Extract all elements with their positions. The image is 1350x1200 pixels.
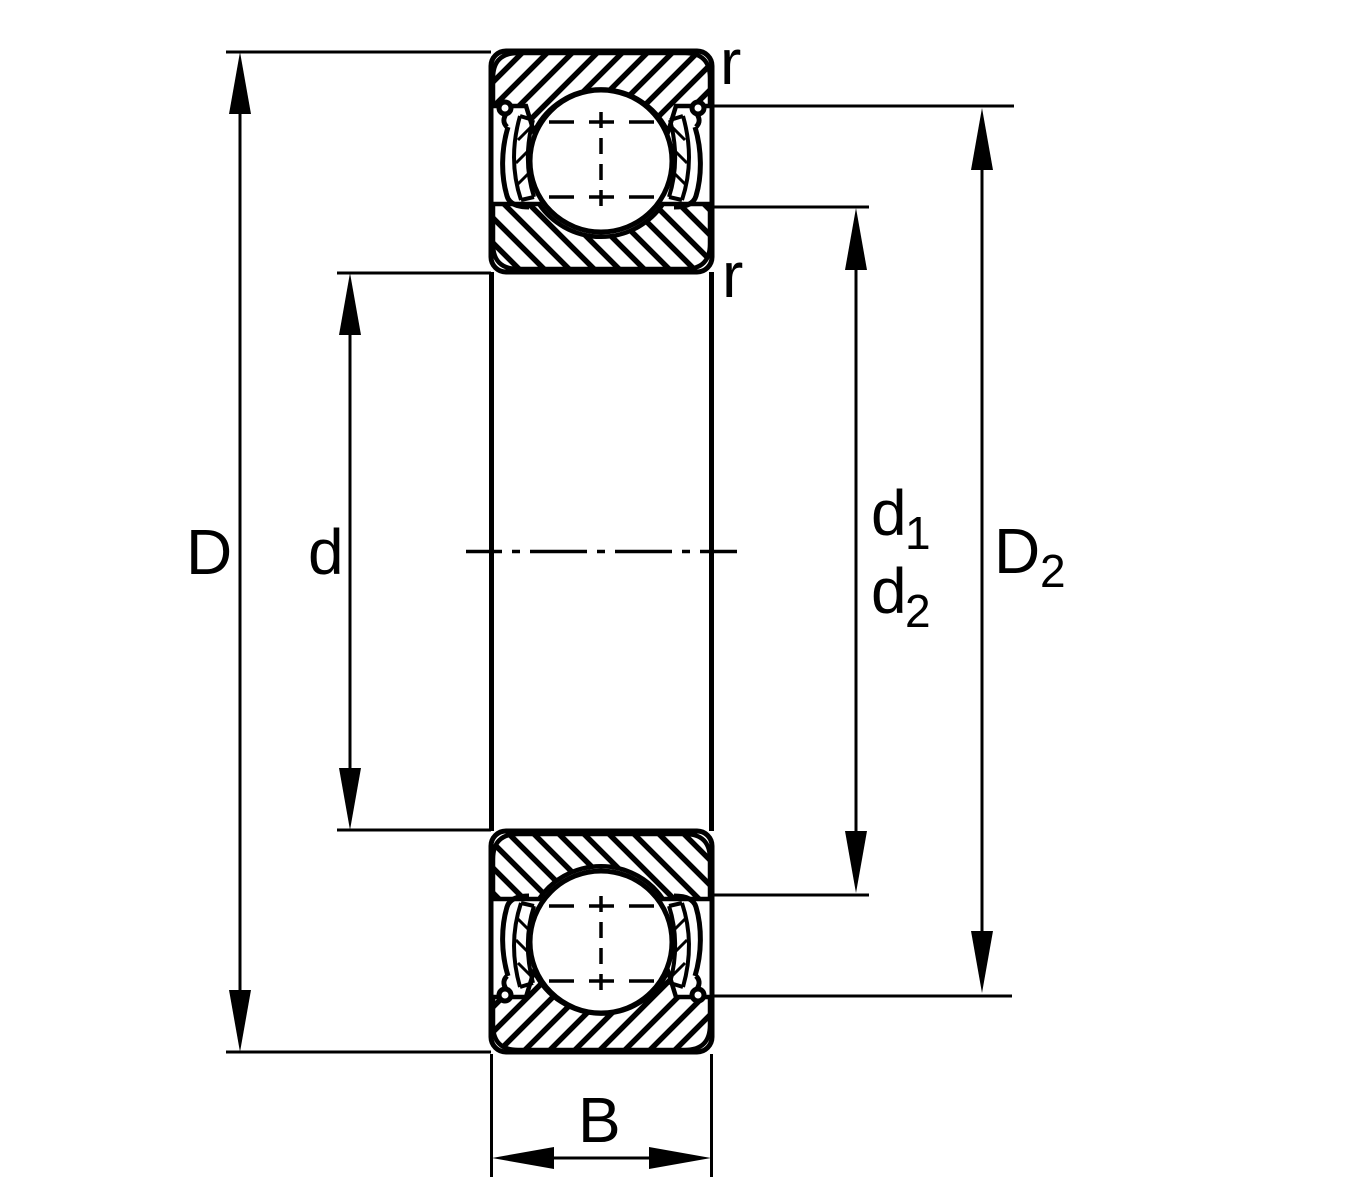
bottom-bearing-block [491, 831, 712, 1052]
top-bearing-block [491, 51, 712, 272]
arrow-up-d1d2 [845, 208, 867, 270]
ball-top [530, 90, 672, 232]
arrow-up-d [339, 273, 361, 335]
arrow-left-B [492, 1147, 554, 1169]
label-corner-radius-r-top: r [720, 26, 741, 98]
arrow-right-B [649, 1147, 711, 1169]
arrow-up-D [229, 52, 251, 114]
arrow-down-d [339, 768, 361, 830]
arrow-down-D [229, 990, 251, 1052]
arrow-down-d1d2 [845, 831, 867, 893]
label-corner-radius-r-bottom: r [722, 239, 743, 311]
arrow-up-D2 [971, 108, 993, 170]
arrow-down-D2 [971, 931, 993, 993]
label-width-B: B [578, 1084, 621, 1156]
label-bore-diameter-d: d [308, 516, 344, 588]
label-shield-dia-d1: d1 [871, 477, 931, 559]
dimension-D [229, 52, 251, 1052]
label-shoulder-dia-D2: D2 [994, 515, 1066, 597]
bearing-diagram-svg: D d d1 d2 D2 B r r [0, 0, 1350, 1200]
label-outer-diameter-D: D [186, 516, 232, 588]
dimension-d1-d2 [845, 208, 867, 893]
bearing-dimension-drawing: D d d1 d2 D2 B r r [0, 0, 1350, 1200]
label-shield-dia-d2: d2 [871, 555, 931, 637]
ball-bottom [530, 871, 672, 1013]
dimension-D2 [971, 108, 993, 993]
